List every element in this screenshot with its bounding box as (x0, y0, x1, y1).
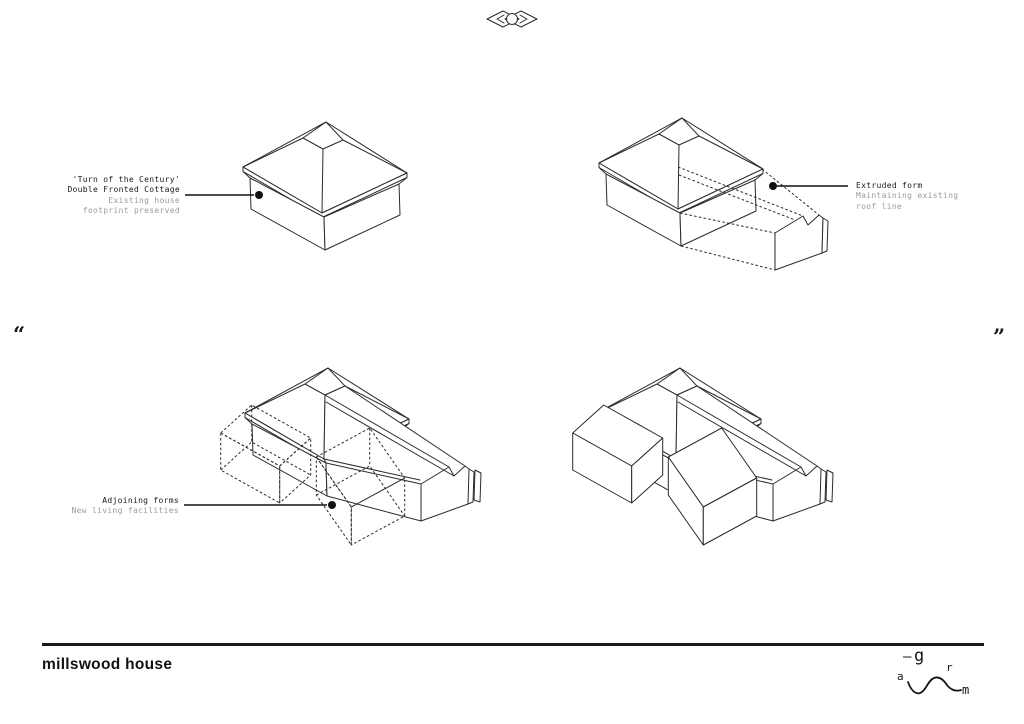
axonometric-drawings (0, 0, 1024, 724)
annotation-line: footprint preserved (0, 206, 180, 216)
annotation-line: New living facilities (0, 506, 179, 516)
annotation-line: roof line (856, 202, 958, 212)
diagram-3-adjoining-forms (221, 368, 481, 545)
diagram-sheet: “ ” (0, 0, 1024, 724)
annotation-line: Extruded form (856, 181, 958, 191)
diagram-2-extruded-form (599, 118, 828, 270)
annotation-line: Existing house (0, 196, 180, 206)
annotation-line: Maintaining existing (856, 191, 958, 201)
leader-dot-adjoining (328, 501, 336, 509)
diagram-4-final-composition (573, 368, 833, 545)
leader-dot-extruded (769, 182, 777, 190)
annotation-adjoining-forms: Adjoining forms New living facilities (0, 496, 179, 517)
diagram-1-existing-cottage (243, 122, 407, 250)
annotation-extruded-form: Extruded form Maintaining existing roof … (856, 181, 958, 212)
project-title: millswood house (42, 656, 172, 674)
leader-dot-existing (255, 191, 263, 199)
annotation-line: Double Fronted Cottage (0, 185, 180, 195)
annotation-line: Adjoining forms (0, 496, 179, 506)
annotation-line: 'Turn of the Century' (0, 175, 180, 185)
footer-rule (42, 643, 984, 646)
annotation-existing-cottage: 'Turn of the Century' Double Fronted Cot… (0, 175, 180, 217)
logo-squiggle-icon (895, 645, 995, 705)
